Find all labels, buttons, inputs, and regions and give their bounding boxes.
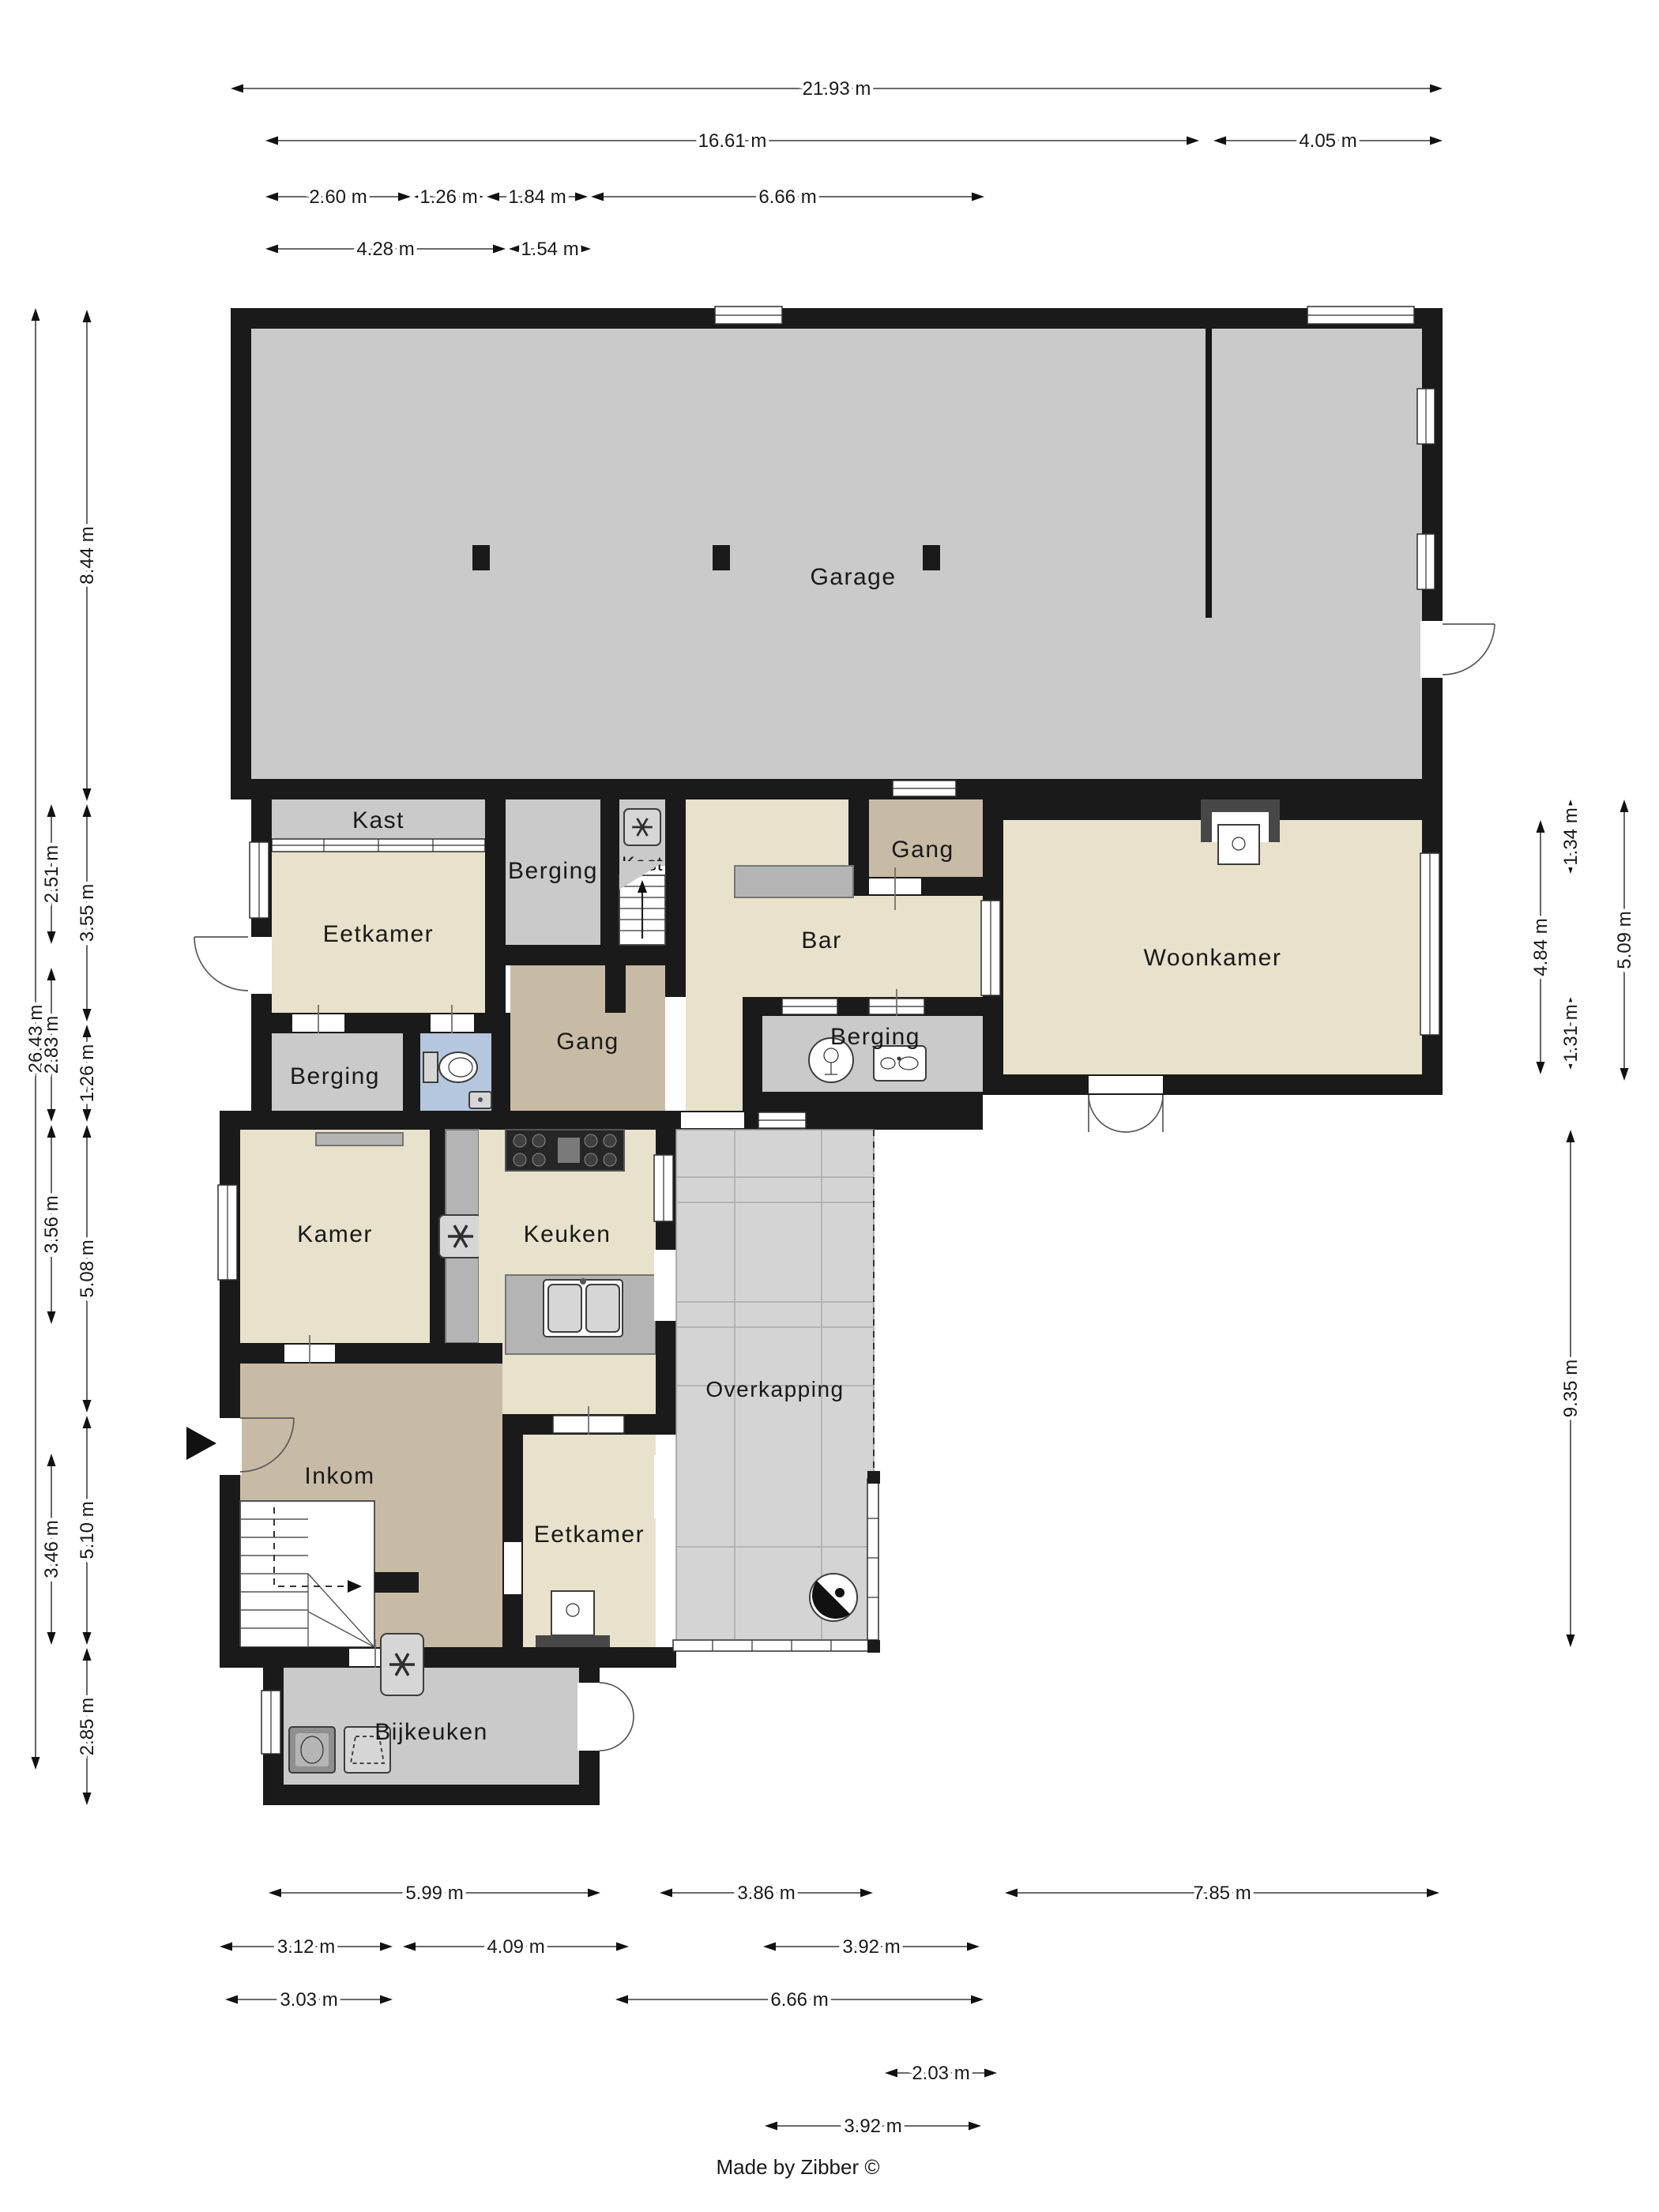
sink-basin <box>548 1285 581 1332</box>
dimension: 4.05 m <box>1213 130 1443 152</box>
dimension-label: 2.83 m <box>41 1016 62 1074</box>
dimension-label: 2.60 m <box>309 186 367 208</box>
dimension: 2.83 m <box>41 968 62 1122</box>
dimension: 3.92 m <box>765 2116 981 2137</box>
dimension-label: 1.26 m <box>419 186 477 208</box>
dimension-label: 1.26 m <box>77 1044 98 1102</box>
dimension-label: 21.93 m <box>803 78 871 100</box>
room-label-woonkamer: Woonkamer <box>1144 945 1282 971</box>
room-label-eetkamer-top: Eetkamer <box>323 921 434 947</box>
dimension: 1.84 m <box>487 186 588 208</box>
dimension: 21.93 m <box>231 78 1443 100</box>
dimension: 8.44 m <box>77 310 98 801</box>
eetkamer-exterior-door <box>194 937 272 994</box>
dimension: 2.60 m <box>265 186 411 208</box>
dimension: 4.84 m <box>1530 820 1552 1074</box>
dimension: 1.34 m <box>1560 799 1582 874</box>
overkapping-section: Overkapping <box>673 1130 880 1653</box>
dimension-label: 5.08 m <box>77 1240 98 1297</box>
kitchen-island <box>506 1275 656 1354</box>
room-label-garage: Garage <box>810 564 896 590</box>
dimension: 16.61 m <box>265 130 1199 152</box>
dimension: 5.99 m <box>269 1883 600 1904</box>
dimension-label: 4.05 m <box>1299 130 1356 152</box>
garage-pillar <box>472 545 490 570</box>
dimension-label: 3.92 m <box>842 1936 900 1958</box>
bar-counter <box>735 866 853 897</box>
dimension-label: 2.85 m <box>77 1698 98 1755</box>
dimension-label: 1.31 m <box>1560 1004 1582 1062</box>
dimension: 6.66 m <box>615 1989 984 2011</box>
room-label-berging-left: Berging <box>290 1063 380 1089</box>
woonkamer-section: Woonkamer <box>981 799 1443 1132</box>
garage: Garage <box>231 307 1495 799</box>
dimension-label: 6.66 m <box>770 1989 828 2011</box>
dimension-label: 1.54 m <box>521 239 578 260</box>
dimension: 3.56 m <box>41 1125 62 1324</box>
dimension: 2.51 m <box>41 804 62 944</box>
woonkamer-double-door <box>1089 1076 1163 1132</box>
dimension: 2.03 m <box>885 2063 997 2084</box>
dimension: 1.31 m <box>1560 997 1582 1070</box>
bijkeuken-double-door <box>577 1683 634 1751</box>
credit-label: Made by Zibber © <box>716 2155 879 2179</box>
dimension-label: 5.10 m <box>77 1501 98 1559</box>
room-label-bijkeuken: Bijkeuken <box>374 1719 488 1745</box>
dimension: 2.85 m <box>77 1648 98 1805</box>
dimension: 3.86 m <box>660 1883 873 1904</box>
dimension-label: 1.84 m <box>508 186 566 208</box>
dimension: 5.10 m <box>77 1416 98 1645</box>
dimension: 3.55 m <box>77 804 98 1021</box>
dimension-label: 5.09 m <box>1614 911 1635 969</box>
garage-door <box>1420 621 1495 678</box>
water-unit-icon <box>874 1046 926 1081</box>
sink-icon <box>469 1092 491 1108</box>
garage-divider-wall <box>1206 329 1212 618</box>
room-label-overkapping: Overkapping <box>705 1377 844 1401</box>
toilet-icon <box>423 1052 477 1082</box>
room-label-gang-top: Gang <box>891 837 954 863</box>
garage-pillar <box>923 545 940 570</box>
dimension-label: 1.34 m <box>1560 807 1582 865</box>
dimension: 4.09 m <box>403 1936 629 1958</box>
floor-plan: Garage Kast Eetkamer <box>0 0 1659 2212</box>
dimension-label: 4.09 m <box>487 1936 544 1958</box>
dimension-label: 3.86 m <box>737 1883 795 1904</box>
dimension-label: 9.35 m <box>1560 1360 1582 1417</box>
dimension-label: 8.44 m <box>77 526 98 584</box>
room-label-keuken: Keuken <box>524 1221 611 1247</box>
dimension: 5.08 m <box>77 1125 98 1413</box>
bbq-icon <box>810 1574 857 1621</box>
dimension-label: 2.51 m <box>41 845 62 903</box>
dimension-label: 5.99 m <box>405 1883 463 1904</box>
room-label-gang-mid: Gang <box>556 1029 619 1055</box>
garage-floor <box>251 329 1422 779</box>
dimension-label: 3.12 m <box>277 1936 335 1958</box>
dimension: 5.09 m <box>1614 799 1635 1081</box>
dimension-label: 3.55 m <box>77 884 98 942</box>
dimension: 1.54 m <box>509 239 591 260</box>
dimension: 6.66 m <box>591 186 984 208</box>
room-label-inkom: Inkom <box>304 1463 374 1489</box>
corridor-floor <box>686 997 743 1111</box>
sink-basin <box>586 1285 619 1332</box>
dimension: 4.28 m <box>265 239 506 260</box>
dimension: 3.92 m <box>763 1936 980 1958</box>
room-label-berging-top: Berging <box>508 858 598 884</box>
dimension-label: 16.61 m <box>698 130 767 152</box>
dimension-label: 2.03 m <box>912 2063 969 2084</box>
room-label-berging-mid: Berging <box>830 1024 920 1050</box>
room-label-bar: Bar <box>801 927 841 954</box>
dimension: 7.85 m <box>1005 1883 1439 1904</box>
dimension: 3.03 m <box>225 1989 393 2011</box>
hob-icon <box>506 1130 624 1171</box>
garage-pillar <box>713 545 730 570</box>
dimension-label: 7.85 m <box>1193 1883 1251 1904</box>
dimension: 1.26 m <box>414 186 483 208</box>
kamer-shelf <box>316 1133 403 1145</box>
dimension-label: 4.28 m <box>356 239 414 260</box>
dimension-label: 3.03 m <box>280 1989 337 2011</box>
entry-arrow-icon <box>186 1427 216 1460</box>
washer-icon <box>289 1727 335 1773</box>
room-label-kast-top: Kast <box>352 807 404 833</box>
room-label-kamer: Kamer <box>297 1221 373 1247</box>
dimension-label: 4.84 m <box>1530 918 1552 976</box>
room-label-eetkamer-bottom: Eetkamer <box>534 1522 645 1548</box>
dimension: 3.46 m <box>41 1454 62 1645</box>
dimension-label: 3.56 m <box>41 1195 62 1253</box>
dimension-label: 3.92 m <box>844 2116 901 2137</box>
dimension-label: 3.46 m <box>41 1520 62 1578</box>
dimension: 3.12 m <box>220 1936 393 1958</box>
dimension-label: 6.66 m <box>758 186 816 208</box>
dimension: 1.26 m <box>77 1025 98 1122</box>
dimension: 9.35 m <box>1560 1130 1582 1647</box>
